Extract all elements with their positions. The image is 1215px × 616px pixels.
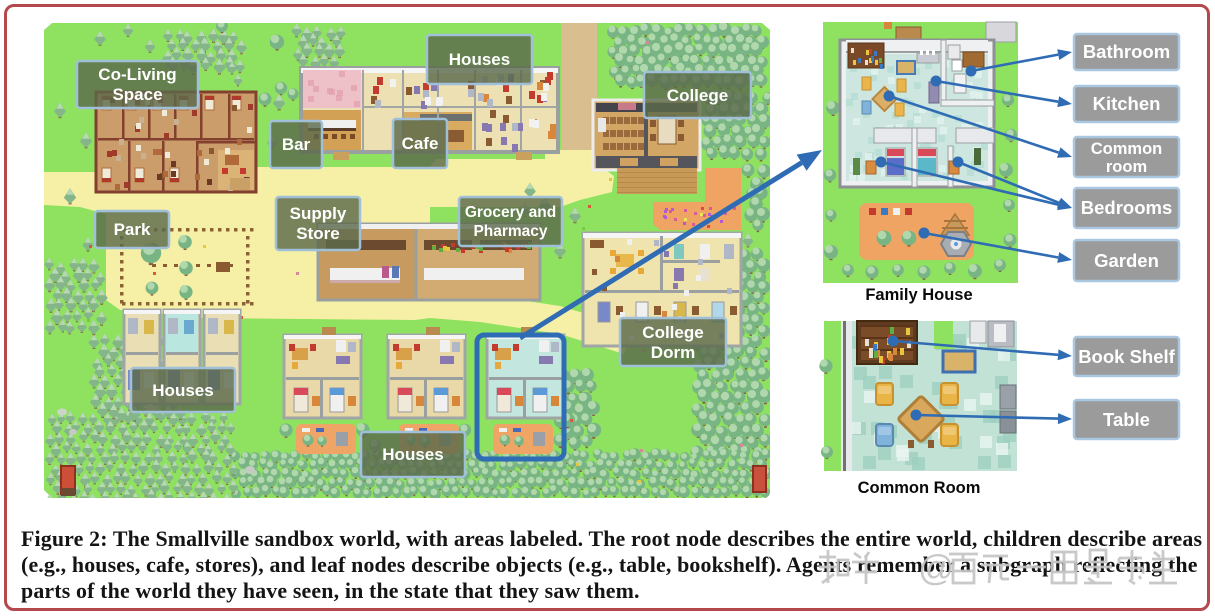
svg-text:Dorm: Dorm (651, 343, 695, 362)
svg-text:Store: Store (296, 224, 339, 243)
svg-text:Common Room: Common Room (858, 479, 981, 497)
svg-text:College: College (667, 86, 728, 105)
svg-text:Bedrooms: Bedrooms (1081, 197, 1173, 218)
svg-text:Houses: Houses (449, 50, 510, 69)
svg-text:Cafe: Cafe (402, 134, 439, 153)
svg-text:Houses: Houses (152, 381, 213, 400)
svg-text:College: College (642, 323, 703, 342)
svg-text:Kitchen: Kitchen (1093, 93, 1161, 114)
svg-text:Space: Space (112, 85, 162, 104)
svg-text:Family House: Family House (865, 286, 972, 304)
svg-text:Garden: Garden (1094, 250, 1159, 271)
svg-text:Park: Park (114, 220, 151, 239)
svg-text:Grocery and: Grocery and (465, 204, 556, 221)
svg-text:Houses: Houses (382, 445, 443, 464)
svg-text:Common: Common (1091, 140, 1163, 158)
svg-text:room: room (1106, 158, 1147, 176)
svg-text:Book Shelf: Book Shelf (1078, 346, 1175, 367)
svg-text:Supply: Supply (290, 204, 347, 223)
svg-text:Bar: Bar (282, 135, 311, 154)
svg-text:Bathroom: Bathroom (1083, 41, 1170, 62)
svg-text:Pharmacy: Pharmacy (473, 223, 547, 240)
svg-text:Co-Living: Co-Living (98, 65, 176, 84)
svg-text:Table: Table (1103, 409, 1150, 430)
